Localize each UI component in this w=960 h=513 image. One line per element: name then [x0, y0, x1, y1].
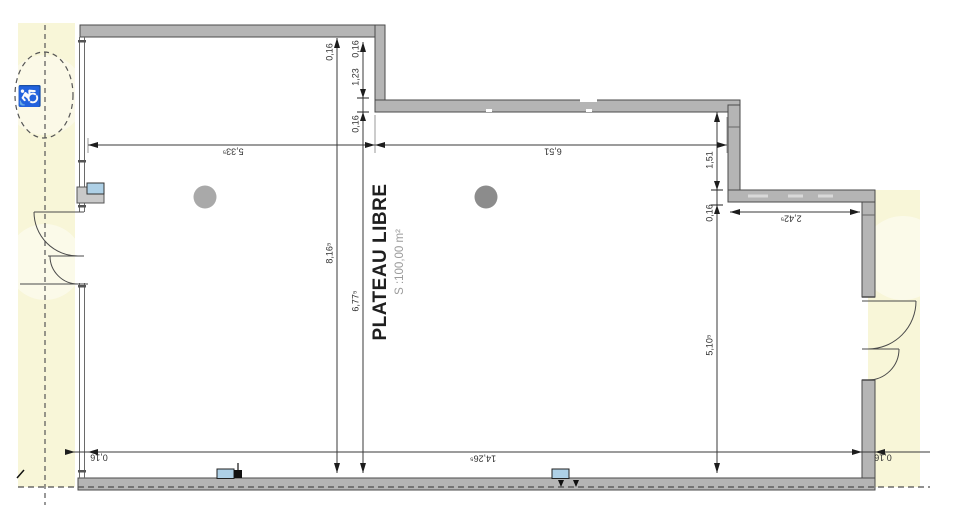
dim-label-top-left-width: 5,33⁵	[222, 147, 243, 156]
dim-label-right-recess-width: 2,42⁵	[780, 214, 801, 223]
wall-bottom	[78, 478, 875, 490]
wheelchair-icon: ♿	[18, 84, 43, 109]
walls	[78, 25, 875, 490]
dim-label-wall-thickness-top-a: 0,16	[326, 43, 335, 61]
dim-label-left-depth: 8,16⁵	[326, 242, 335, 263]
window-box-right	[552, 469, 569, 479]
column-right	[475, 186, 498, 209]
wall-right-upper	[862, 202, 875, 297]
dim-label-wall-thickness-top-b: 0,16	[352, 40, 361, 58]
valve-box	[234, 470, 242, 478]
dim-label-step-recess: 1,23	[352, 68, 361, 86]
wall-step-vertical	[375, 25, 385, 105]
dim-label-top-right-width: 6,51	[544, 147, 562, 156]
dim-label-wall-thickness-bottom-left: 0,16	[90, 453, 108, 462]
wall-right-lower	[862, 380, 875, 478]
dim-label-total-width: 14,26⁵	[470, 454, 496, 463]
wall-right-step	[728, 105, 740, 195]
exterior-yellow-zones	[5, 23, 945, 487]
window-box-left	[217, 469, 234, 479]
column-left	[194, 186, 217, 209]
wall-top-left	[80, 25, 380, 37]
dim-label-wall-thickness-step: 0,16	[352, 115, 361, 133]
columns	[194, 186, 498, 209]
room-area-label: S :100,00 m²	[394, 229, 406, 295]
wall-cabinet	[77, 183, 104, 203]
floor-plan: ♿ PLATEAU LIBRE S :100,00 m² 0,16 0,16 1…	[0, 0, 960, 513]
wall-top-right	[375, 100, 740, 112]
dim-label-wall-thickness-right-step: 0,16	[706, 204, 715, 222]
dim-label-middle-depth: 6,77⁵	[352, 290, 361, 311]
dim-label-right-depth: 5,10⁵	[706, 334, 715, 355]
room-name-label: PLATEAU LIBRE	[370, 183, 392, 340]
dim-label-wall-thickness-bottom-right: 0,16	[874, 453, 892, 462]
floor-plan-drawing	[0, 0, 960, 513]
dim-label-right-step-height: 1,51	[706, 151, 715, 169]
